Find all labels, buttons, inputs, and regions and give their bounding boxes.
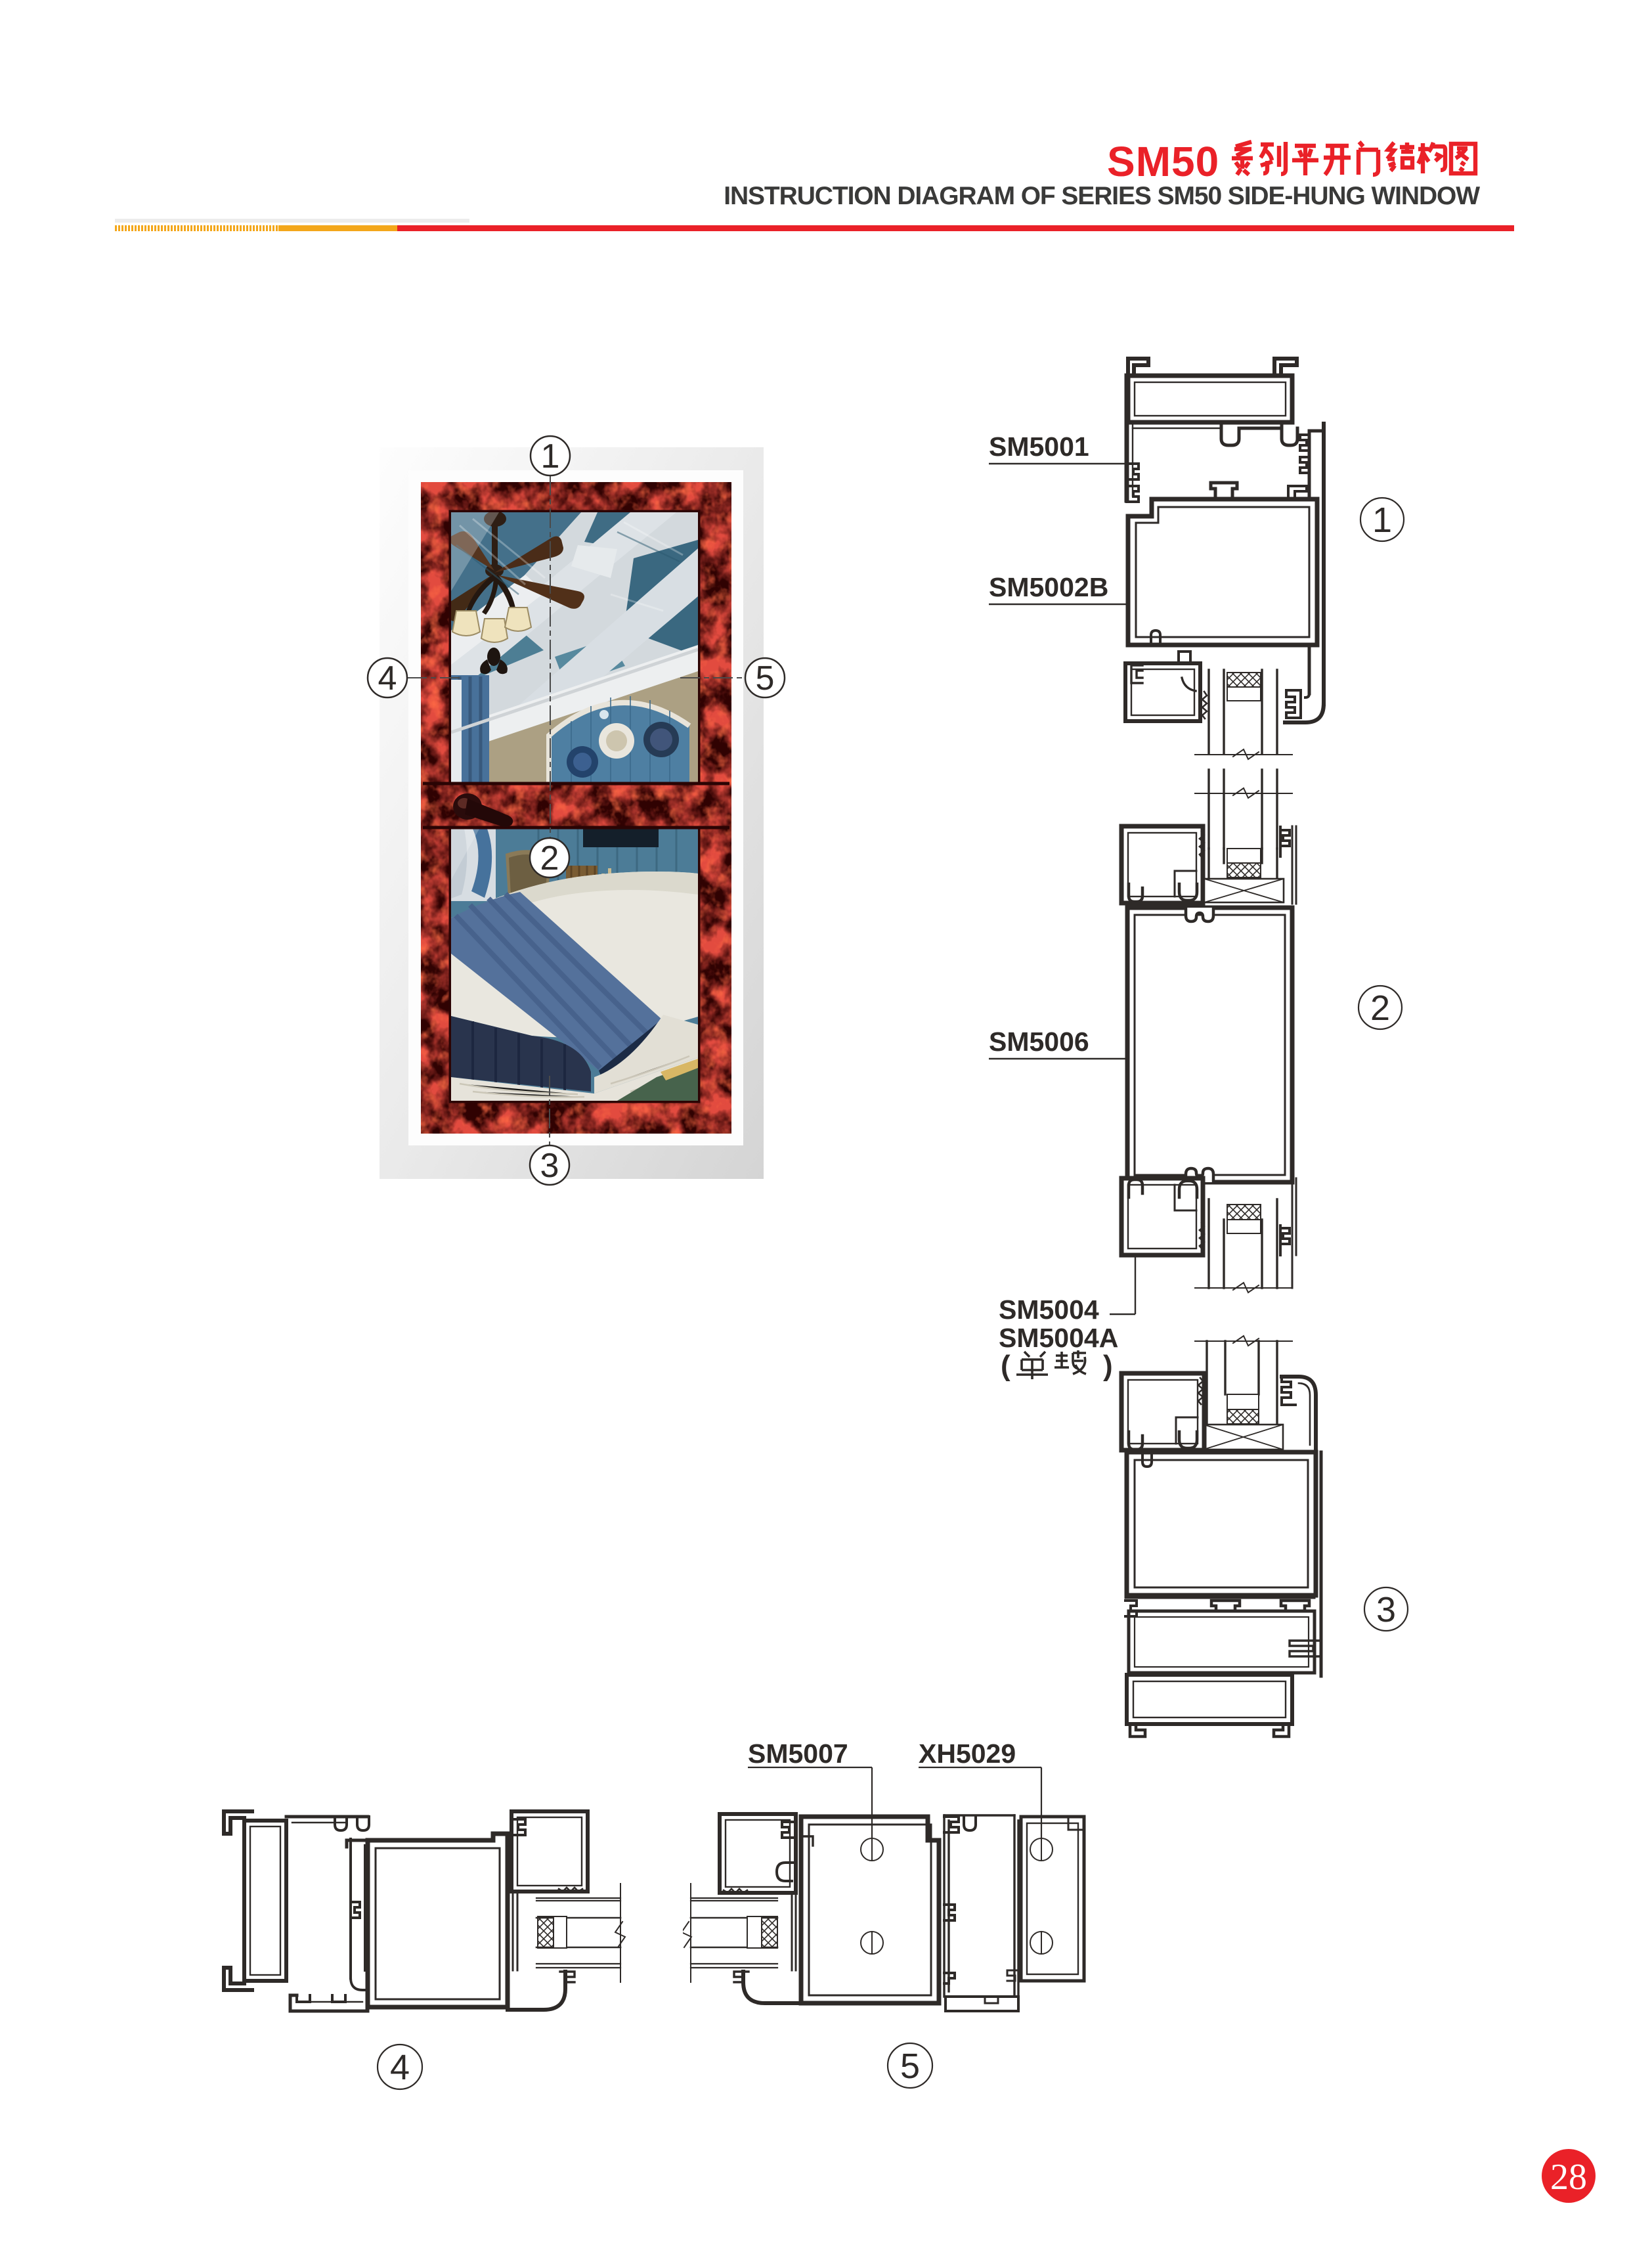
- svg-text:1: 1: [541, 437, 560, 476]
- svg-text:(: (: [1001, 1350, 1011, 1382]
- svg-text:SM5002B: SM5002B: [989, 572, 1108, 602]
- svg-text:5: 5: [900, 2047, 920, 2086]
- svg-text:SM5006: SM5006: [989, 1027, 1089, 1057]
- svg-text:XH5029: XH5029: [919, 1738, 1016, 1769]
- svg-text:1: 1: [1372, 500, 1392, 540]
- svg-text:3: 3: [540, 1147, 559, 1185]
- svg-text:5: 5: [756, 659, 775, 697]
- svg-text:4: 4: [378, 659, 397, 697]
- svg-text:SM5001: SM5001: [989, 432, 1089, 462]
- svg-text:2: 2: [540, 839, 559, 877]
- svg-text:2: 2: [1370, 988, 1390, 1028]
- svg-text:4: 4: [390, 2048, 410, 2087]
- svg-text:3: 3: [1376, 1590, 1396, 1629]
- svg-text:SM5007: SM5007: [748, 1738, 848, 1769]
- svg-text:SM5004: SM5004: [999, 1295, 1099, 1325]
- svg-text:SM50: SM50: [1107, 138, 1219, 183]
